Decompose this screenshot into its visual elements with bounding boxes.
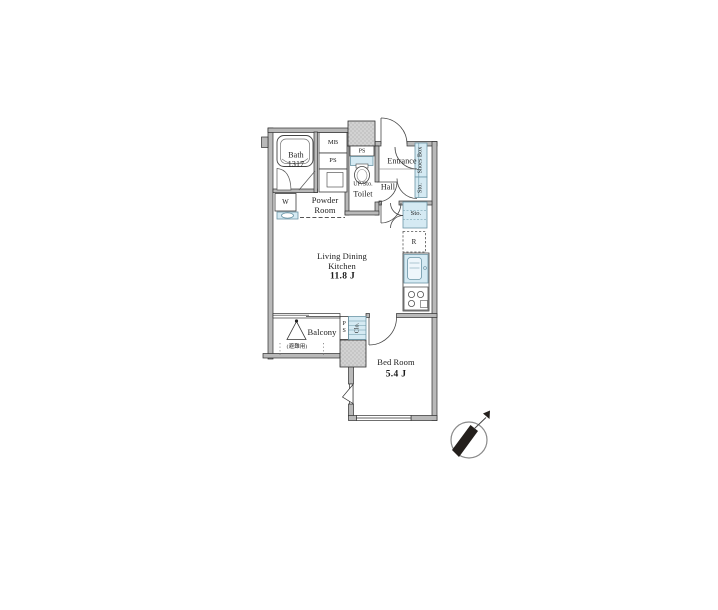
label-powder-room: Powder Room (312, 195, 339, 215)
faucet (424, 267, 427, 270)
label-up-storage: UP/Sto. (353, 181, 373, 188)
label-hall-storage: Sto. (417, 183, 424, 193)
label-ldk: Living Dining Kitchen (317, 251, 367, 271)
label-shoes-box: Shoes Box (417, 147, 424, 174)
evacuation-hatch-icon (287, 319, 306, 339)
bath-door (299, 171, 315, 190)
label-meter-box: MB (328, 139, 338, 147)
label-balcony: Balcony (307, 326, 336, 336)
label-hall: Hall (381, 182, 395, 191)
label-entrance: Entrance (387, 156, 416, 165)
floor-plan-canvas: MB PS Bath 1317 W Powder Room PS UP/Sto.… (0, 0, 718, 610)
stove-icon (404, 287, 428, 310)
label-ldk-storage: Sto. (411, 210, 422, 218)
label-washer: W (282, 198, 289, 206)
structural-column (340, 340, 366, 367)
washbasin-bowl (282, 213, 294, 218)
label-toilet: Toilet (353, 189, 372, 198)
label-bath: Bath 1317 (288, 151, 304, 170)
ldk-balcony-window (273, 314, 340, 319)
hall-storage-door-arc (397, 179, 417, 199)
vanity-counter (327, 173, 343, 188)
storage-double-door-arc-2 (391, 216, 404, 229)
entrance-door-arc (381, 118, 407, 144)
meter-shaft-box (348, 121, 375, 146)
label-pipe-space: PS (329, 157, 336, 165)
label-hatch-note: (避難用) (287, 343, 308, 349)
floor-plan-drawing (0, 0, 718, 610)
label-ldk-size: 11.8 J (330, 271, 355, 282)
casement-swing-mark (343, 385, 354, 404)
bedroom-door-arc (369, 318, 397, 346)
label-closet: Clo. (354, 323, 361, 334)
label-toilet-ps: PS (359, 148, 366, 155)
compass-north-icon (451, 411, 490, 459)
kitchen-sink-basin (408, 258, 422, 280)
bath-counter (277, 169, 291, 191)
label-bed-room: Bed Room (377, 357, 414, 367)
label-balcony-ps: P S (342, 321, 345, 335)
label-bed-room-size: 5.4 J (386, 369, 407, 380)
label-refrigerator: R (412, 237, 417, 245)
